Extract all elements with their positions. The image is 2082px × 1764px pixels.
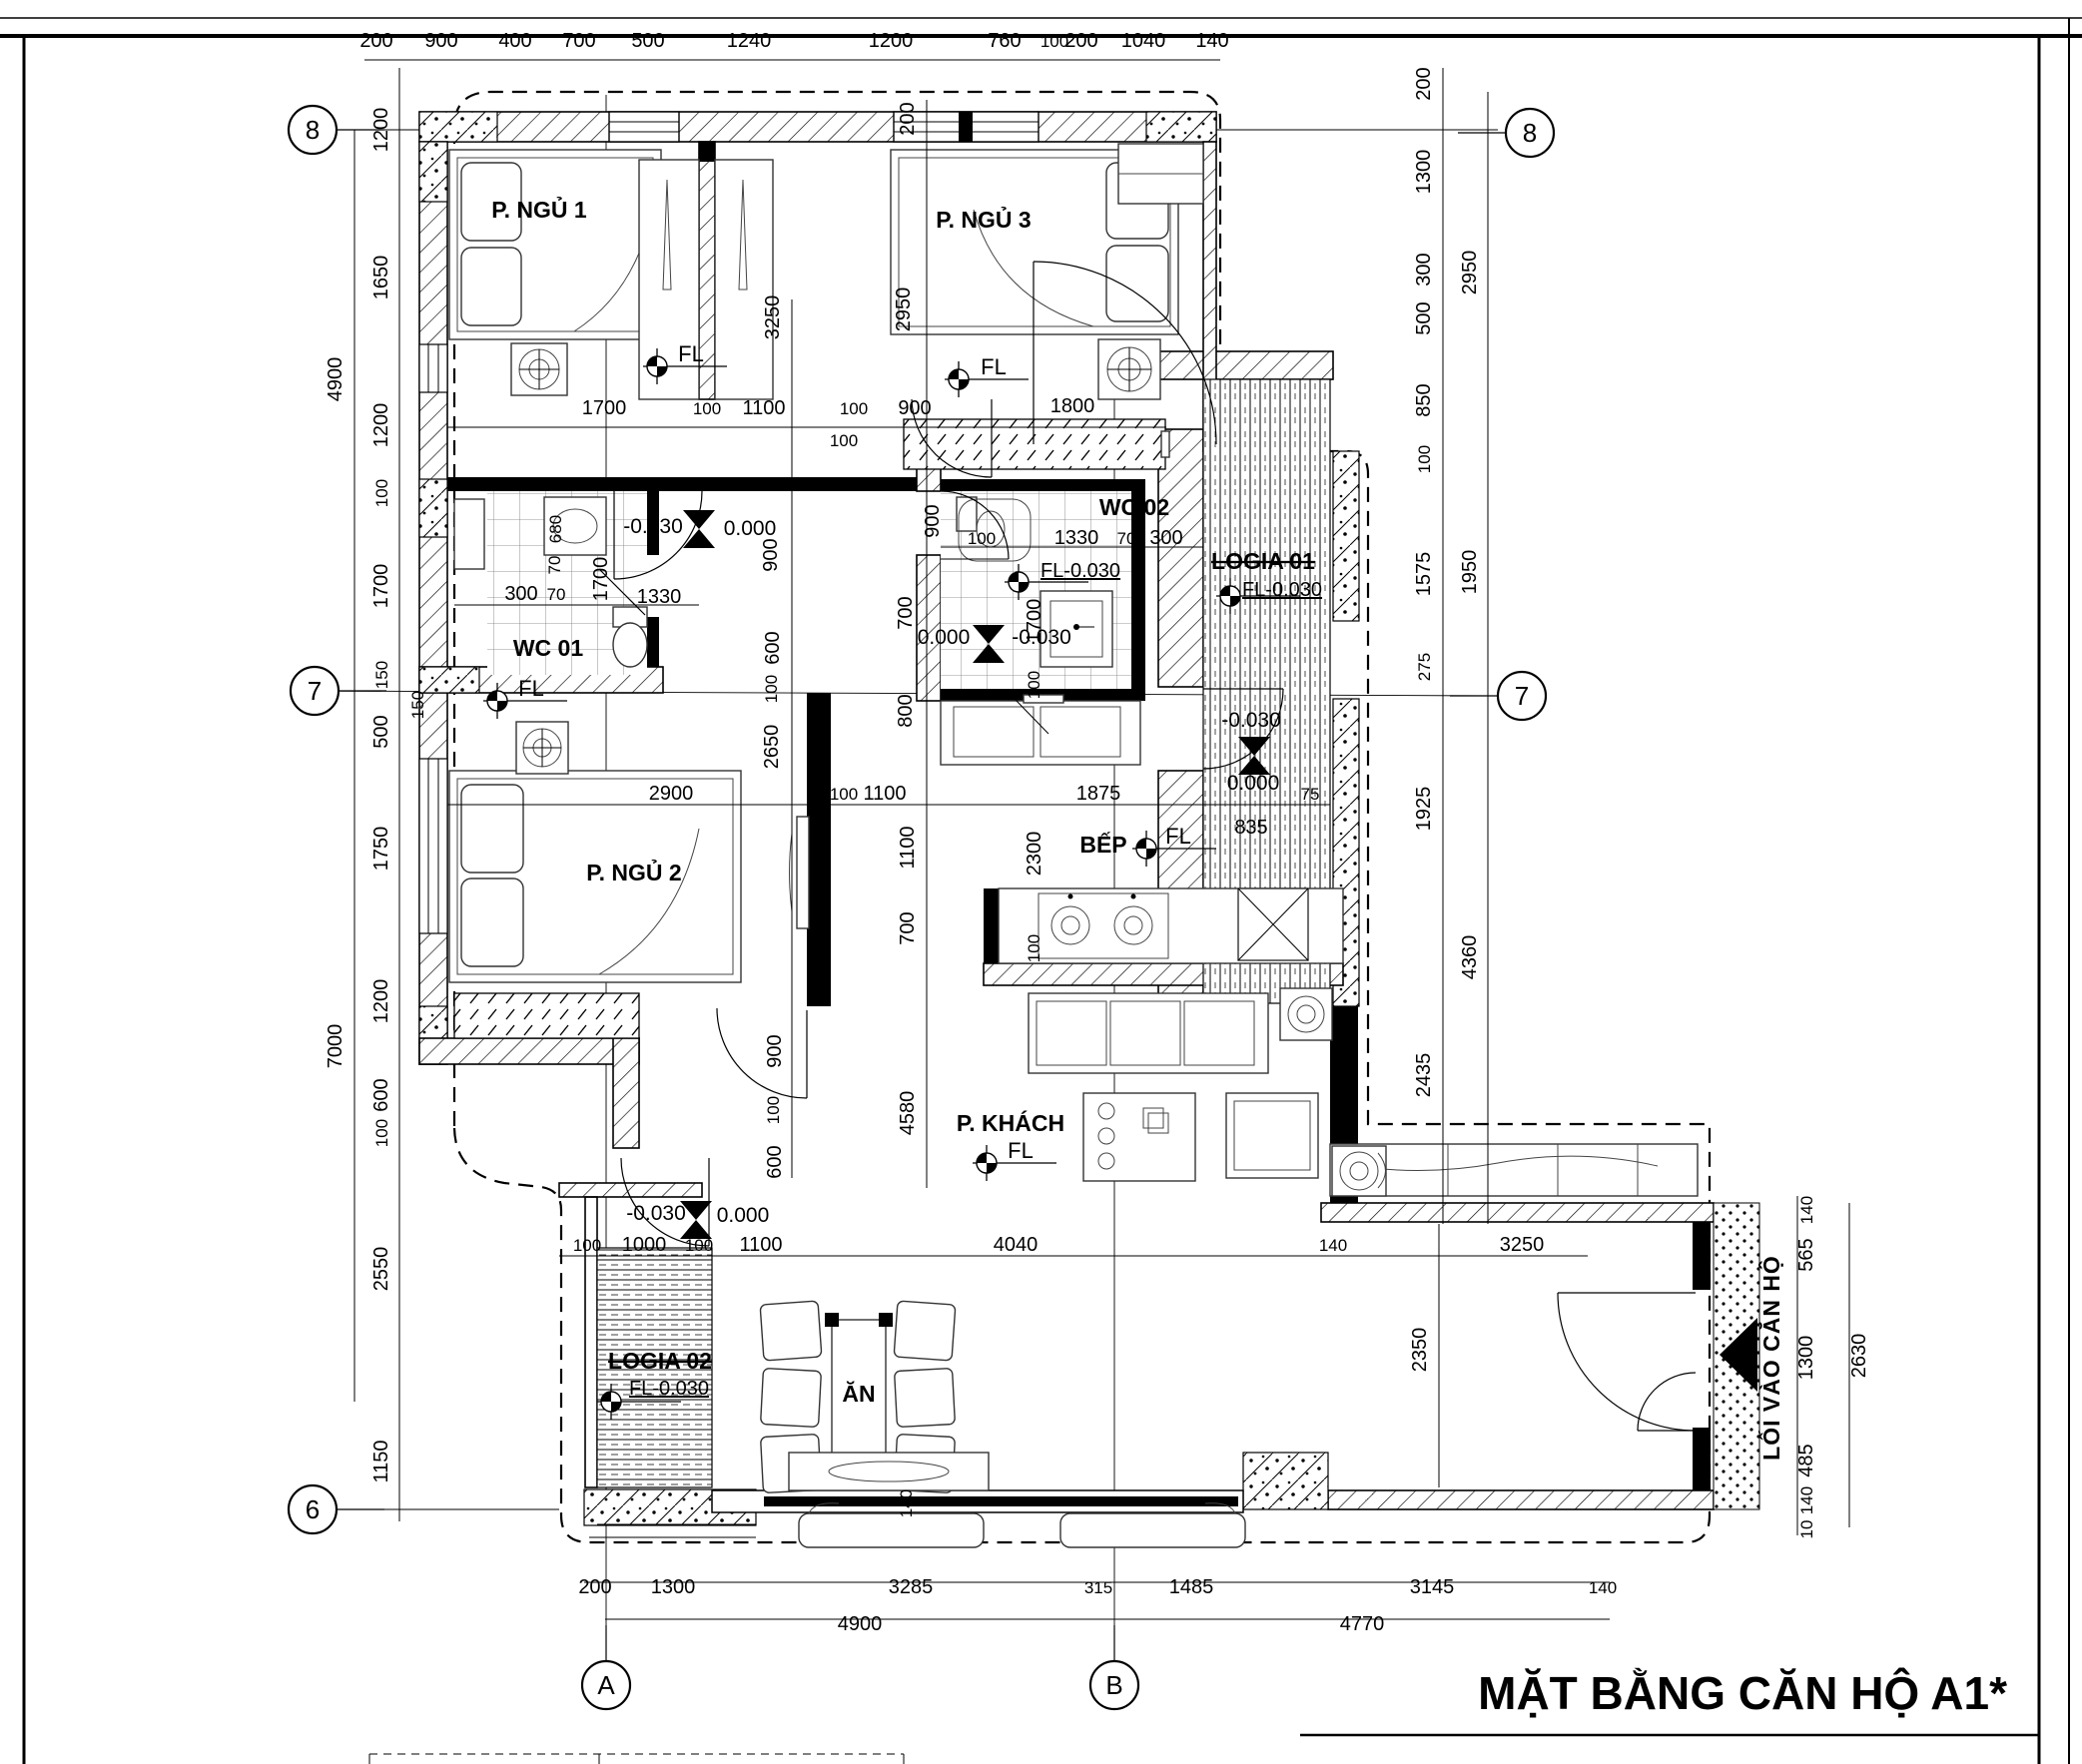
svg-text:8: 8 (1523, 118, 1537, 148)
window-top-bedroom1 (609, 112, 679, 142)
dim-label: 1100 (897, 826, 919, 869)
grid-bubble-A: A (582, 1625, 630, 1709)
dim-label: 1650 (370, 256, 392, 300)
dim-label: 100 (840, 399, 868, 418)
dim-label: FL-0.030 (1242, 579, 1322, 601)
bedroom1 (449, 150, 661, 395)
dim-label: 140 (1589, 1578, 1617, 1597)
sofa (1029, 993, 1268, 1073)
dim-label: 900 (898, 397, 931, 419)
dim-label: -0.030 (626, 1202, 686, 1225)
window-left-wc01 (419, 344, 447, 392)
door-entrance (1558, 1293, 1696, 1431)
nightstand-1 (511, 343, 567, 395)
dim-label: 900 (922, 504, 944, 537)
dim-label: 800 (895, 694, 917, 727)
dim-label: 100 (830, 785, 858, 804)
dim-label: FL (678, 341, 704, 366)
floorplan-sheet: 2009004007005001240120076010020010401401… (0, 0, 2082, 1764)
dim-label: 100 (372, 479, 391, 507)
dim-label: 300 (1149, 527, 1182, 549)
dim-label: FL (1165, 824, 1191, 849)
dim-label: 140 (1195, 30, 1228, 52)
svg-text:7: 7 (308, 676, 322, 706)
window-dining-south (712, 1490, 1243, 1512)
floorplan-drawing: 2009004007005001240120076010020010401401… (0, 0, 2082, 1764)
dim-label: 2630 (1848, 1334, 1870, 1379)
dim-label: 200 (1064, 30, 1097, 52)
dim-label: 70 (545, 556, 564, 575)
dim-label: 600 (764, 1145, 786, 1178)
dim-label: 700 (562, 30, 595, 52)
dim-label: 140 (1319, 1236, 1347, 1255)
dim-label: 3250 (762, 295, 784, 340)
room-label-logia01: LOGIA 01 (1211, 548, 1315, 574)
room-label-dining: ĂN (842, 1380, 875, 1407)
entry-corridor (1714, 1203, 1759, 1509)
dim-label: 300 (1413, 253, 1435, 286)
dim-label: 1000 (622, 1234, 667, 1256)
dim-label: FL (1008, 1138, 1034, 1163)
dim-label: 760 (988, 30, 1021, 52)
dim-label: 1200 (869, 30, 914, 52)
dim-label: 3250 (1500, 1234, 1545, 1256)
room-label-bedroom2: P. NGỦ 2 (586, 858, 681, 885)
dim-label: 1100 (863, 783, 906, 805)
dim-label: 600 (762, 631, 784, 664)
room-label-wc02: WC 02 (1099, 494, 1169, 520)
threshold-icon (683, 510, 715, 548)
dim-label: 3145 (1410, 1576, 1455, 1598)
window-left-bedroom2 (419, 759, 447, 933)
dim-label: 1485 (1169, 1576, 1214, 1598)
dim-label: 200 (578, 1576, 611, 1598)
dim-label: 0.000 (724, 517, 777, 540)
dim-label: 2950 (1459, 251, 1481, 295)
dim-label: 150 (372, 661, 391, 689)
grid-bubble-8: 8 (1458, 109, 1554, 157)
dim-label: 100 (372, 1119, 391, 1147)
grid-bubble-6: 6 (289, 1485, 384, 1533)
dim-label: 900 (424, 30, 457, 52)
door-bedroom2 (717, 1008, 807, 1098)
room-label-living: P. KHÁCH (957, 1109, 1064, 1136)
dim-label: FL-0.030 (629, 1378, 709, 1400)
dim-label: 2550 (370, 1247, 392, 1292)
dim-label: 70 (547, 585, 566, 604)
dim-label: 500 (1413, 301, 1435, 334)
wc02 (941, 491, 1131, 689)
dim-label: 1300 (1413, 150, 1435, 195)
dim-label: 2900 (649, 783, 694, 805)
dim-label: 70 (1117, 529, 1136, 548)
dim-label: 1040 (1121, 30, 1166, 52)
dim-label: 2435 (1413, 1053, 1435, 1098)
room-label-bedroom1: P. NGỦ 1 (491, 195, 587, 223)
dim-label: 1150 (370, 1440, 392, 1482)
dim-label: -0.030 (1012, 626, 1071, 649)
dim-label: 140 (897, 1489, 916, 1517)
coffee-table (1083, 1093, 1195, 1181)
dim-label: 140 (1797, 1486, 1816, 1514)
dim-label: 200 (359, 30, 392, 52)
dim-label: 4580 (897, 1091, 919, 1136)
dim-label: 1700 (370, 564, 392, 609)
dim-label: 4900 (325, 357, 347, 402)
svg-text:B: B (1105, 1670, 1122, 1700)
dim-label: 1300 (651, 1576, 696, 1598)
svg-text:6: 6 (306, 1494, 320, 1524)
dim-label: -0.030 (623, 515, 683, 538)
dim-label: 1200 (370, 403, 392, 448)
dim-label: -0.030 (1221, 709, 1281, 732)
dim-label: 10 (1797, 1520, 1816, 1539)
wardrobe-2 (454, 993, 639, 1038)
dim-label: 100 (573, 1236, 601, 1255)
dim-label: 680 (546, 515, 565, 543)
dim-label: 4770 (1340, 1613, 1385, 1635)
dim-label: 200 (897, 102, 919, 135)
room-label-logia02: LOGIA 02 (608, 1348, 712, 1374)
dim-label: 1925 (1413, 787, 1435, 832)
dim-label: 100 (968, 529, 996, 548)
dim-label: 1100 (742, 397, 785, 419)
dim-label: 850 (1413, 383, 1435, 416)
dim-label: 1100 (739, 1234, 782, 1256)
dim-label: 500 (631, 30, 664, 52)
dim-label: 0.000 (1227, 772, 1280, 795)
dim-label: 1750 (370, 827, 392, 872)
dim-label: 315 (1084, 1578, 1112, 1597)
window-bench (1330, 1144, 1698, 1196)
dim-label: FL-0.030 (1041, 560, 1120, 582)
svg-text:8: 8 (306, 115, 320, 145)
dim-label: 1575 (1413, 552, 1435, 597)
dim-label: 485 (1795, 1444, 1817, 1476)
dim-label: 1200 (370, 979, 392, 1024)
dim-label: 900 (760, 538, 782, 571)
dim-label: 100 (1025, 671, 1043, 699)
dim-label: 400 (498, 30, 531, 52)
side-table (1280, 988, 1332, 1040)
nightstand-3 (1098, 339, 1160, 399)
dim-label: 900 (764, 1034, 786, 1067)
dim-label: 500 (370, 715, 392, 748)
svg-text:A: A (597, 1670, 615, 1700)
dim-label: 1300 (1795, 1336, 1817, 1381)
dim-label: FL (981, 354, 1007, 379)
washer (516, 722, 568, 774)
dim-label: 565 (1795, 1238, 1817, 1271)
svg-text:7: 7 (1515, 681, 1529, 711)
dim-label: 4360 (1459, 935, 1481, 980)
dim-label: 0.000 (918, 626, 971, 649)
dim-label: 0.000 (717, 1204, 770, 1227)
dim-label: 2950 (893, 288, 915, 332)
dim-label: 100 (764, 1096, 783, 1124)
toilet-wc01 (613, 607, 647, 667)
dim-label: 7000 (325, 1024, 347, 1069)
dim-label: 100 (1025, 934, 1043, 962)
living-room (1029, 988, 1332, 1181)
dim-label: 150 (408, 691, 427, 719)
dim-label: 1950 (1459, 550, 1481, 595)
dim-label: 835 (1234, 817, 1267, 839)
dim-label: 100 (830, 431, 858, 450)
dim-label: 1700 (590, 557, 612, 602)
dim-label: 75 (1301, 785, 1320, 804)
dim-label: 2300 (1024, 832, 1045, 877)
dim-label: 4040 (994, 1234, 1039, 1256)
dim-label: 1800 (1050, 395, 1095, 417)
fan-unit (1332, 1146, 1386, 1196)
dim-label: 275 (1415, 653, 1434, 681)
dim-label: 200 (1413, 67, 1435, 100)
room-label-bedroom3: P. NGỦ 3 (936, 205, 1031, 233)
dim-label: 1330 (637, 586, 682, 608)
entry-label: LỐI VÀO CĂN HỘ (1757, 1255, 1784, 1461)
dim-label: 2350 (1409, 1328, 1431, 1373)
room-label-kitchen: BẾP (1079, 831, 1126, 858)
dim-label: 100 (1415, 445, 1434, 473)
dim-label: 100 (762, 675, 781, 703)
dim-label: 700 (895, 596, 917, 629)
grid-bubble-7: 7 (1450, 672, 1546, 720)
dim-label: 1875 (1076, 783, 1121, 805)
fridge (1238, 888, 1308, 960)
dim-label: FL (518, 676, 544, 701)
dim-label: 140 (1797, 1196, 1816, 1224)
dim-label: 100 (693, 399, 721, 418)
dim-label: 3285 (889, 1576, 934, 1598)
dim-label: 300 (504, 583, 537, 605)
armchair (1226, 1093, 1318, 1178)
dim-label: 2650 (761, 725, 783, 770)
dim-label: 4900 (838, 1613, 883, 1635)
dim-label: 1330 (1054, 527, 1099, 549)
dim-label: 1700 (582, 397, 627, 419)
dim-label: 700 (897, 911, 919, 944)
dim-label: 1240 (727, 30, 772, 52)
grid-bubble-B: B (1090, 1625, 1138, 1709)
room-label-wc01: WC 01 (513, 635, 584, 661)
dim-label: 600 (370, 1078, 392, 1111)
drawing-title: MẶT BẰNG CĂN HỘ A1* (1478, 1667, 2007, 1719)
